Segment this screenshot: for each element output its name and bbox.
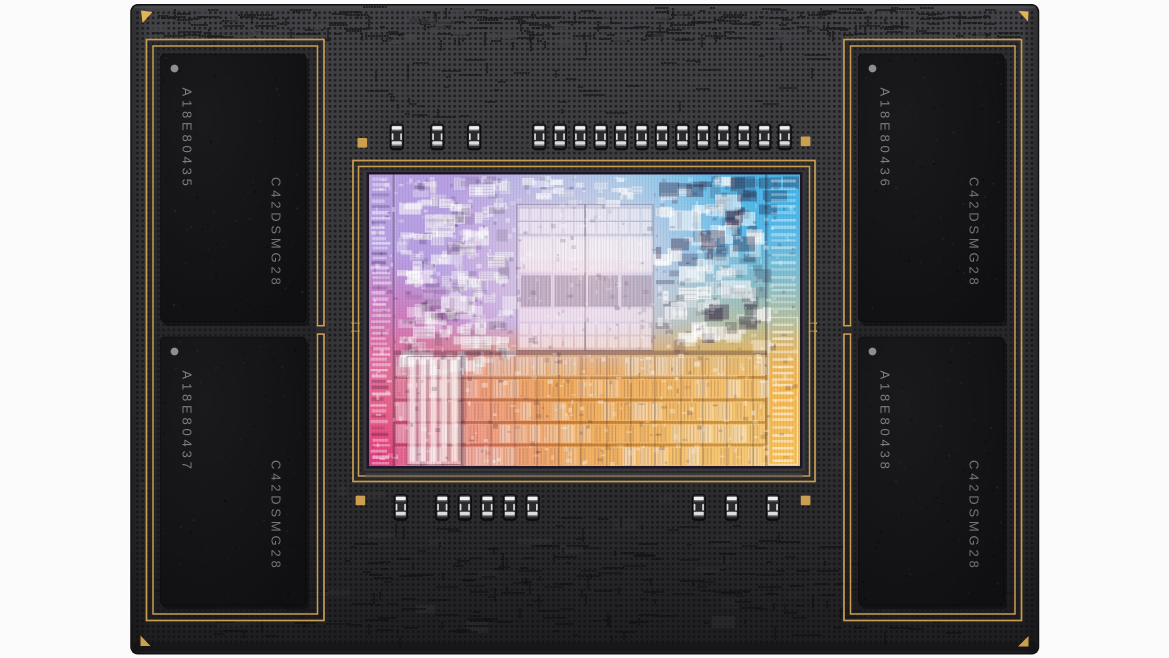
svg-text:A18E80435: A18E80435 (180, 88, 195, 190)
svg-text:A18E80436: A18E80436 (878, 88, 893, 190)
svg-text:C42DSMG28: C42DSMG28 (967, 460, 982, 572)
svg-text:A18E80437: A18E80437 (180, 371, 195, 473)
svg-text:A18E80438: A18E80438 (878, 371, 893, 473)
svg-text:C42DSMG28: C42DSMG28 (967, 177, 982, 289)
svg-text:C42DSMG28: C42DSMG28 (269, 460, 284, 572)
svg-text:C42DSMG28: C42DSMG28 (269, 177, 284, 289)
